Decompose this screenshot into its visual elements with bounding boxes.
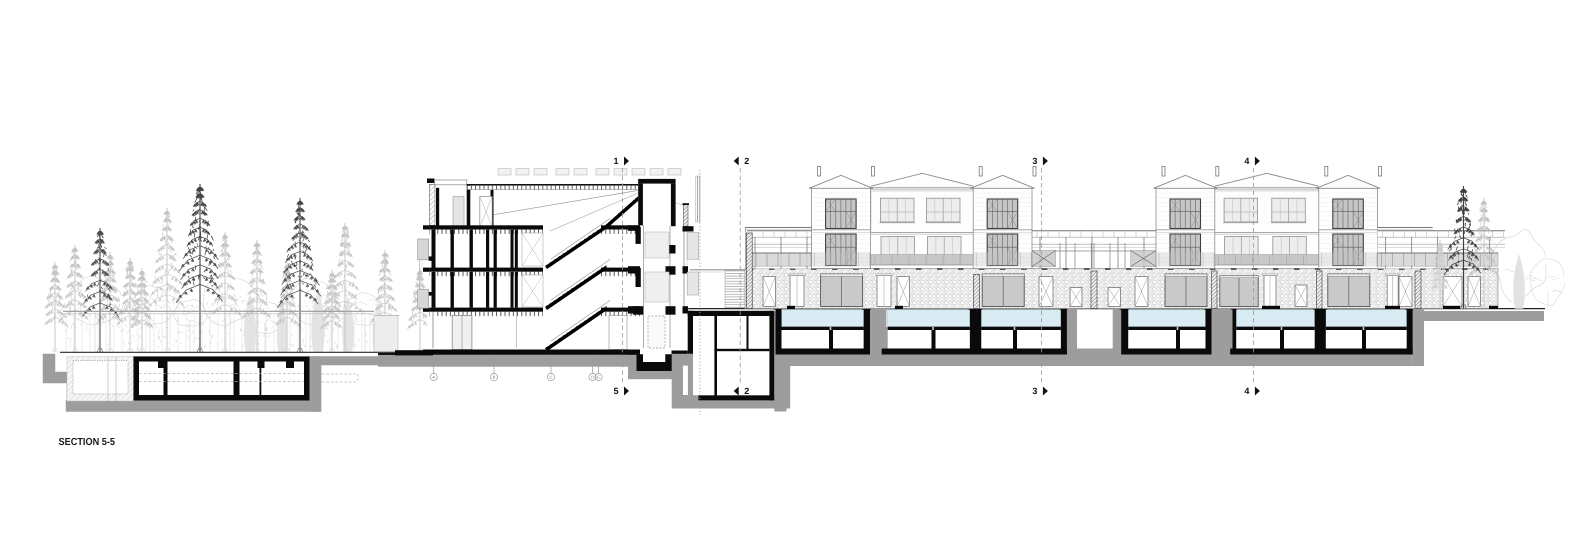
svg-text:2: 2 — [744, 156, 749, 166]
svg-text:E: E — [597, 375, 600, 380]
svg-text:2: 2 — [744, 386, 749, 396]
svg-text:3: 3 — [1032, 156, 1037, 166]
svg-text:SECTION 5-5: SECTION 5-5 — [59, 437, 116, 448]
svg-text:1: 1 — [613, 156, 618, 166]
svg-text:4: 4 — [1244, 156, 1249, 166]
svg-text:D: D — [591, 375, 594, 380]
svg-text:3: 3 — [1032, 386, 1037, 396]
svg-text:A: A — [432, 375, 435, 380]
svg-text:5: 5 — [613, 386, 618, 396]
svg-text:B: B — [493, 375, 496, 380]
svg-text:C: C — [550, 375, 553, 380]
svg-text:4: 4 — [1244, 386, 1249, 396]
